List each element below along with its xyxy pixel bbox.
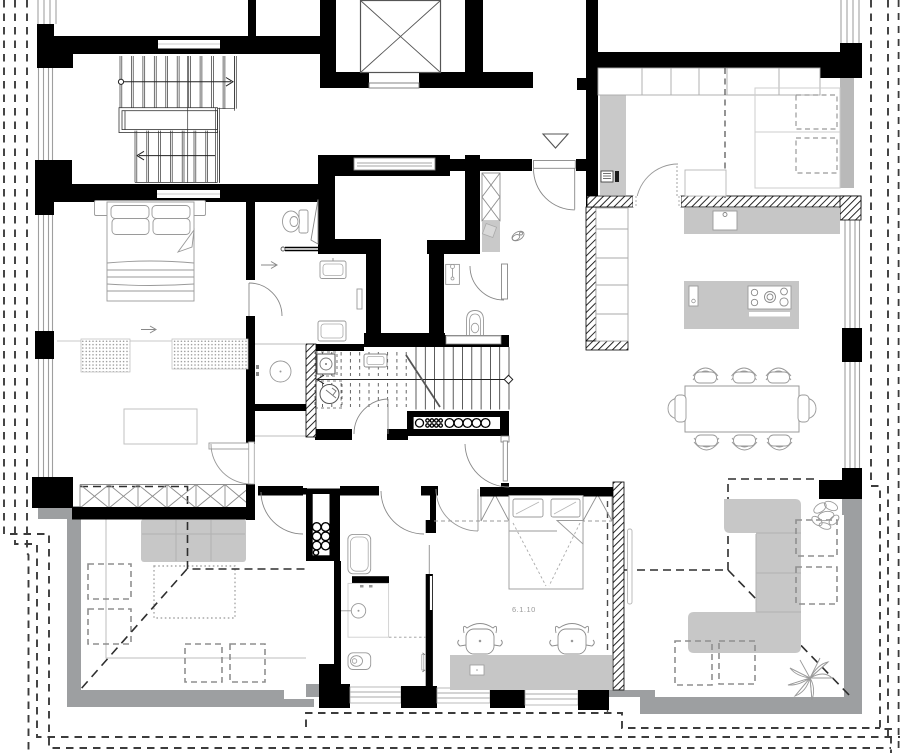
svg-text:6.1.10: 6.1.10 bbox=[512, 605, 536, 614]
